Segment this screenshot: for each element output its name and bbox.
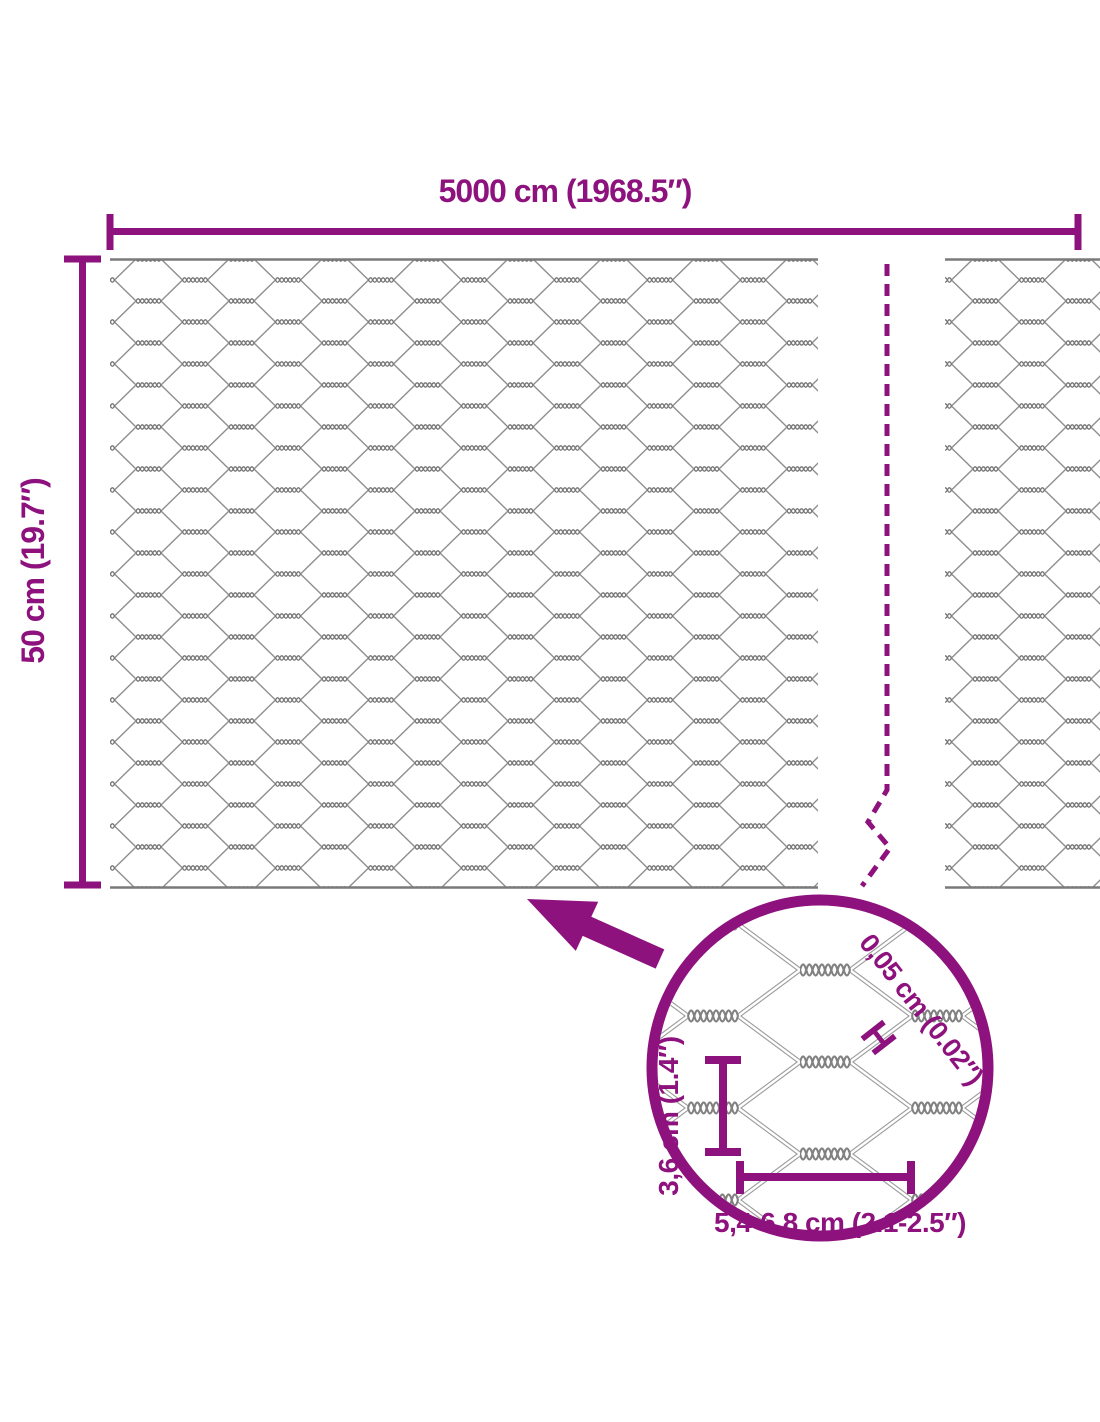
cell-height-label: 3,6 cm (1.4″) xyxy=(653,1036,684,1195)
break-line xyxy=(862,264,890,886)
magnifier: 3,6 cm (1.4″) 5,4-6,8 cm (2.1-2.5″) 0,05… xyxy=(650,898,990,1238)
mesh-dimension-diagram: 5000 cm (1968.5″) 50 cm (19.7″) 3,6 cm (… xyxy=(0,0,1100,1422)
cell-width-label: 5,4-6,8 cm (2.1-2.5″) xyxy=(714,1207,966,1238)
mesh-panel-left xyxy=(110,259,818,888)
product-dimension-diagram: 5000 cm (1968.5″) 50 cm (19.7″) 3,6 cm (… xyxy=(0,0,1100,1422)
top-dimension: 5000 cm (1968.5″) xyxy=(110,173,1078,250)
side-dimension-label: 50 cm (19.7″) xyxy=(15,478,51,664)
zoom-arrow-icon xyxy=(527,899,664,969)
mesh-panel-right xyxy=(945,259,1100,888)
top-dimension-label: 5000 cm (1968.5″) xyxy=(439,173,692,209)
side-dimension: 50 cm (19.7″) xyxy=(15,259,101,885)
